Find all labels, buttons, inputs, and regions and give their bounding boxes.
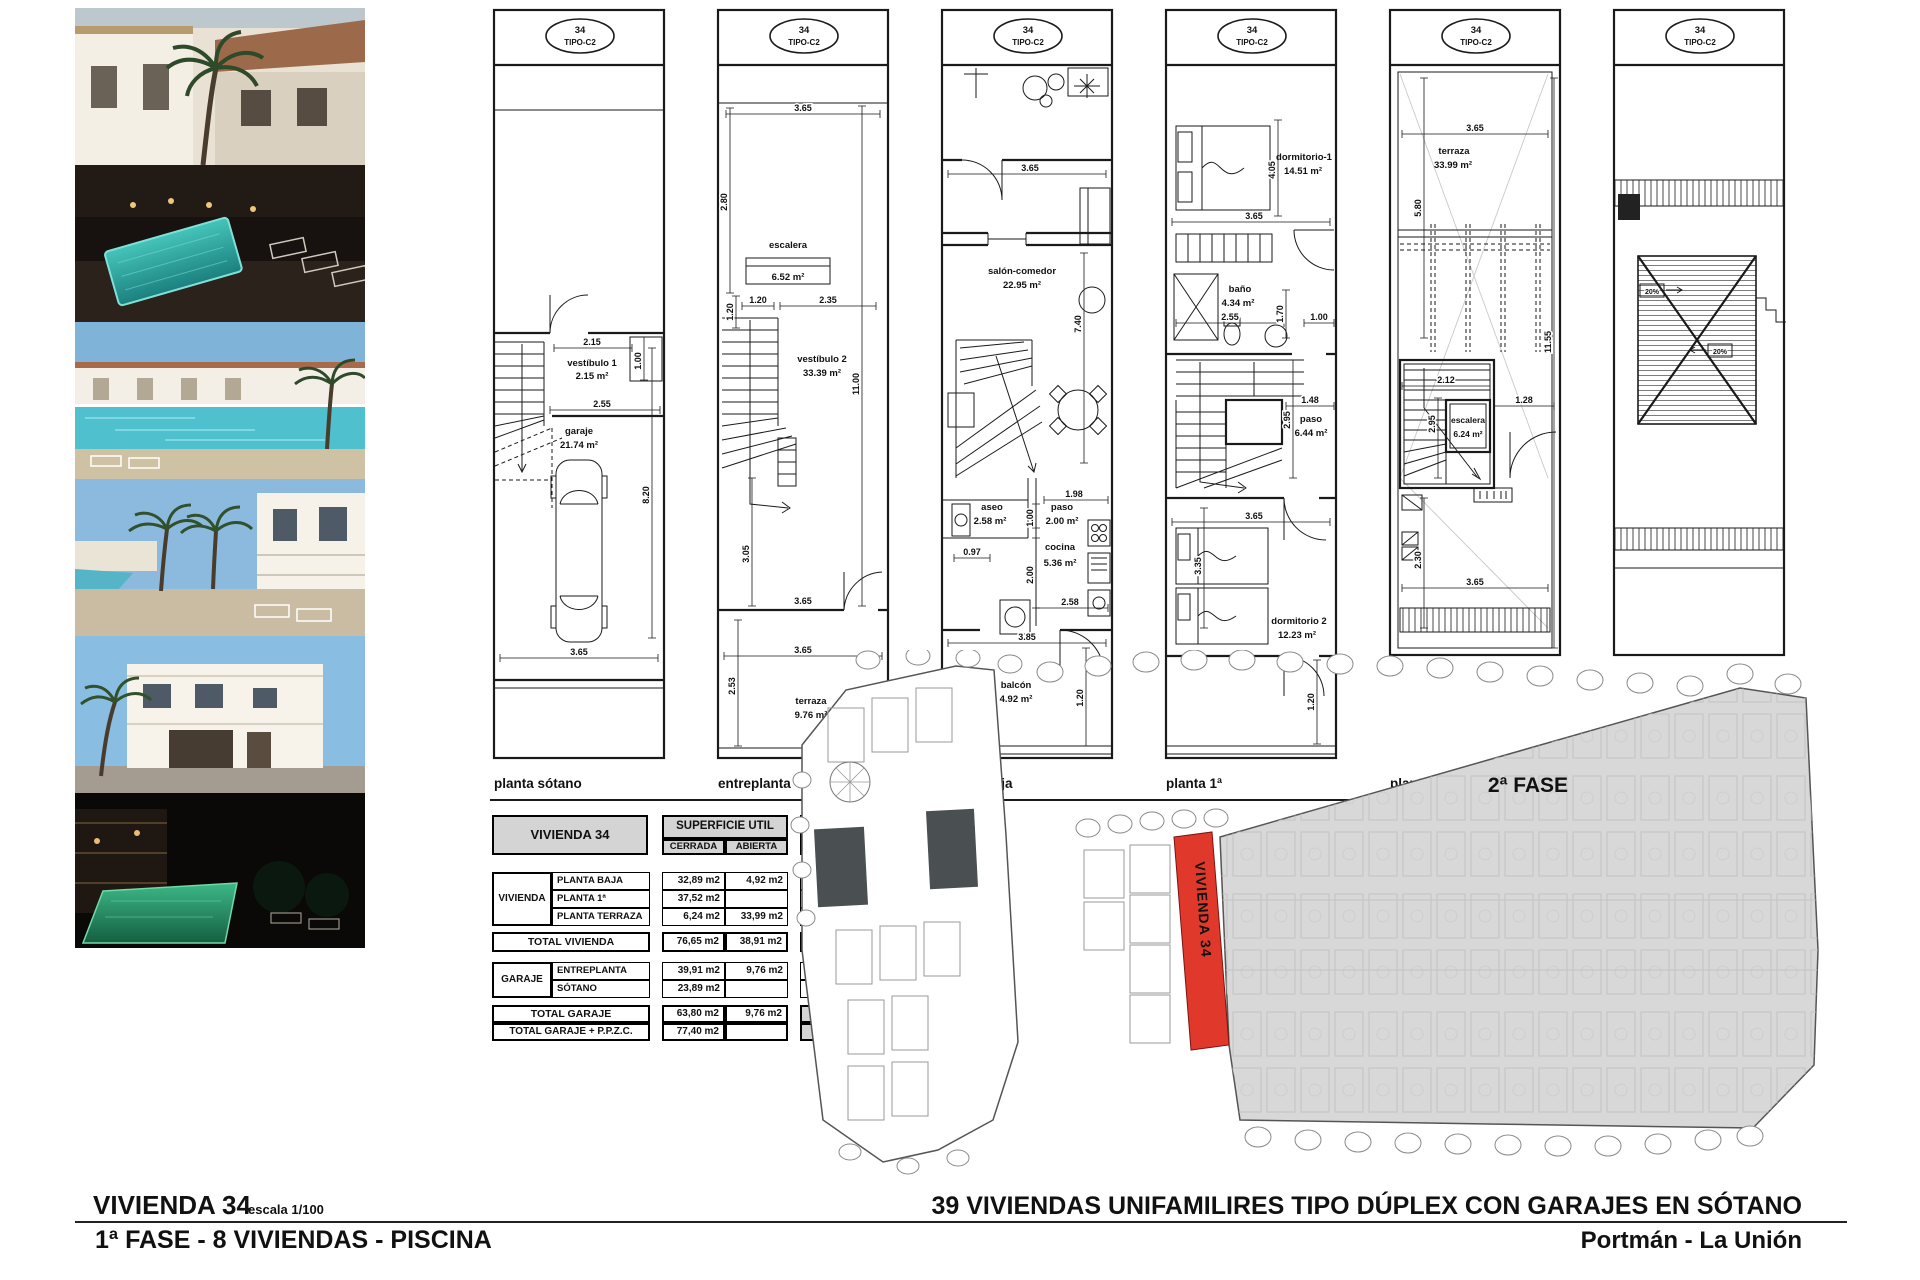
room-label: dormitorio-1 [1276,152,1333,163]
garage-door [169,730,233,768]
dim-label: 3.85 [1018,632,1036,642]
cell-cerrada: 37,52 m2 [662,890,725,908]
plan-linework [1166,10,1336,758]
badge: 34 TIPO-C2 [1442,19,1510,53]
room-label: dormitorio 2 [1271,616,1326,627]
cell-cerrada: 6,24 m2 [662,908,725,926]
cell-abierta: 4,92 m2 [725,872,788,890]
total-vivienda-abierta: 38,91 m2 [725,932,788,952]
room-label: cocina [1045,542,1076,553]
badge-number: 34 [1471,25,1482,36]
title-rule [75,1221,1847,1223]
badge-number: 34 [1695,25,1706,36]
group-label-garaje: GARAJE [492,962,552,998]
room-label: vestíbulo 1 [567,358,617,369]
room-label: paso [1051,502,1073,513]
dim-label: 3.05 [741,545,751,563]
room-area: 6.44 m² [1295,428,1328,439]
pergola-beams [1400,224,1550,352]
plan-linework [1614,10,1786,655]
floor-plan-planta-sotano: 34 TIPO-C2 2.15 1.00 vestíbulo 1 2.15 m²… [492,8,666,768]
render-photo-pool-night-1 [75,165,365,322]
slope-label: 20% [1645,289,1660,296]
dim-label: 3.35 [1193,557,1203,575]
dim-label: 2.12 [1437,375,1455,385]
plan-linework [942,10,1112,758]
room-area: 33.99 m² [1434,160,1472,171]
dim-label: 3.65 [1245,511,1263,521]
location-subtitle: Portmán - La Unión [1581,1227,1802,1255]
dim-label: 1.00 [1025,509,1035,527]
total-garaje-cerrada: 63,80 m2 [662,1005,725,1023]
room-area: 6.24 m² [1453,429,1482,439]
badge: 34 TIPO-C2 [546,19,614,53]
dim-label: 4.05 [1267,161,1277,179]
beds [1176,528,1268,644]
group-label-vivienda: VIVIENDA [492,872,552,926]
room-area: 14.51 m² [1284,166,1322,177]
row-label: PLANTA BAJA [552,872,650,890]
badge: 34 TIPO-C2 [770,19,838,53]
room-area: 22.95 m² [1003,280,1041,291]
service-icons [1402,495,1422,560]
total-garaje-abierta: 9,76 m2 [725,1005,788,1023]
sheet-scale: escala 1/100 [248,1202,324,1217]
room-area: 4.34 m² [1222,298,1255,309]
slope-label: 20% [1713,349,1728,356]
room-area: 33.39 m² [803,368,841,379]
cell-cerrada: 32,89 m2 [662,872,725,890]
room-label: escalera [769,240,808,251]
badge-number: 34 [575,25,586,36]
plan-caption: entreplanta [718,776,791,791]
total-vivienda-cerrada: 76,65 m2 [662,932,725,952]
room-label: salón-comedor [988,266,1056,277]
room-label: garaje [565,426,593,437]
drawing-sheet: 34 TIPO-C2 2.15 1.00 vestíbulo 1 2.15 m²… [0,0,1920,1280]
room-label: aseo [981,502,1003,513]
dim-label: 3.65 [1021,163,1039,173]
room-area: 2.15 m² [576,371,609,382]
total-vivienda-label: TOTAL VIVIENDA [492,932,650,952]
render-photo-terrace-day [75,479,365,636]
badge: 34 TIPO-C2 [1666,19,1734,53]
cell-cerrada: 39,91 m2 [662,962,725,980]
dim-label: 2.55 [593,399,611,409]
row-label: SÓTANO [552,980,650,998]
phase1-block [802,666,1170,1162]
room-area: 12.23 m² [1278,630,1316,641]
plan-caption: planta sótano [494,776,582,791]
badge-type: TIPO-C2 [1012,38,1044,47]
total-garaje-ppzc-cerrada: 77,40 m2 [662,1023,725,1041]
badge-type: TIPO-C2 [788,38,820,47]
site-plan: 2ª FASE VIVIENDA 34 [788,650,1823,1180]
bed [1176,126,1270,210]
dim-label: 11.00 [851,373,861,395]
render-photo-pool-night-2 [75,793,365,948]
col-header-cerrada: CERRADA [662,839,725,855]
dim-label: 3.65 [794,596,812,606]
phase2-label: 2ª FASE [1488,774,1568,797]
room-label: vestíbulo 2 [797,354,847,365]
dim-label: 1.20 [725,303,735,321]
dim-label: 2.95 [1427,415,1437,433]
dim-label: 3.65 [1466,123,1484,133]
badge: 34 TIPO-C2 [1218,19,1286,53]
render-photo-facade-day [75,636,365,793]
car [556,460,602,642]
dim-label: 2.95 [1282,411,1292,429]
dim-label: 8.20 [641,486,651,504]
plan-linework [494,10,664,758]
furniture [948,188,1110,434]
dim-label: 1.48 [1301,395,1319,405]
pool [75,407,365,449]
dim-label: 2.55 [1221,312,1239,322]
badge-type: TIPO-C2 [1460,38,1492,47]
pool-1 [814,827,868,908]
room-area: 5.36 m² [1044,558,1077,569]
room-label: escalera [1451,415,1485,425]
phase-subtitle: 1ª FASE - 8 VIVIENDAS - PISCINA [95,1226,492,1255]
dim-label: 3.65 [1245,211,1263,221]
dim-label: 3.65 [570,647,588,657]
chimney [1618,194,1640,220]
dim-label: 2.00 [1025,566,1035,584]
dim-label: 1.98 [1065,489,1083,499]
row-label: PLANTA 1ª [552,890,650,908]
badge-type: TIPO-C2 [1684,38,1716,47]
room-area: 6.52 m² [772,272,805,283]
dim-label: 2.35 [819,295,837,305]
render-photo-street-day [75,8,365,165]
row-label: PLANTA TERRAZA [552,908,650,926]
garden [964,68,1108,107]
dim-label: 2.58 [1061,597,1079,607]
room-area: 21.74 m² [560,440,598,451]
dim-label: 3.65 [794,103,812,113]
dim-label: 3.65 [1466,577,1484,587]
col-header-abierta: ABIERTA [725,839,788,855]
sheet-title: VIVIENDA 34 [93,1190,251,1221]
cell-cerrada: 23,89 m2 [662,980,725,998]
dim-label: 1.00 [633,352,643,370]
dim-label: 0.97 [963,547,981,557]
dim-label: 2.80 [719,193,729,211]
room-area: 2.00 m² [1046,516,1079,527]
badge-number: 34 [1023,25,1034,36]
col-header-util: SUPERFICIE UTIL [662,815,788,839]
badge-type: TIPO-C2 [1236,38,1268,47]
dim-label: 5.80 [1413,199,1423,217]
total-garaje-label: TOTAL GARAJE [492,1005,650,1023]
dim-label: 1.28 [1515,395,1533,405]
dim-label: 1.00 [1310,312,1328,322]
roof-hatch [1638,256,1756,424]
dim-label: 11.55 [1543,331,1553,353]
dim-label: 2.30 [1413,551,1423,569]
cell-abierta: 9,76 m2 [725,962,788,980]
stairs [956,340,1042,478]
phase2-block: 2ª FASE [1220,688,1820,1128]
badge-number: 34 [799,25,810,36]
room-label: baño [1229,284,1252,295]
dim-label: 1.70 [1275,305,1285,323]
pool [83,883,237,943]
cell-abierta: 33,99 m2 [725,908,788,926]
pool-2 [926,809,978,889]
cell-abierta [725,890,788,908]
dim-label: 2.53 [727,677,737,695]
dim-label: 2.15 [583,337,601,347]
cell-abierta [725,980,788,998]
dim-label: 7.40 [1073,315,1083,333]
row-label: ENTREPLANTA [552,962,650,980]
badge: 34 TIPO-C2 [994,19,1062,53]
room-area: 2.58 m² [974,516,1007,527]
dim-label: 1.20 [749,295,767,305]
room-label: terraza [1438,146,1470,157]
badge-type: TIPO-C2 [564,38,596,47]
render-photo-pool-day [75,322,365,479]
project-title: 39 VIVIENDAS UNIFAMILIRES TIPO DÚPLEX CO… [932,1192,1803,1221]
total-garaje-ppzc-label: TOTAL GARAJE + P.P.Z.C. [492,1023,650,1041]
badge-number: 34 [1247,25,1258,36]
total-garaje-ppzc-abierta [725,1023,788,1041]
room-label: paso [1300,414,1322,425]
table-title: VIVIENDA 34 [492,815,648,855]
